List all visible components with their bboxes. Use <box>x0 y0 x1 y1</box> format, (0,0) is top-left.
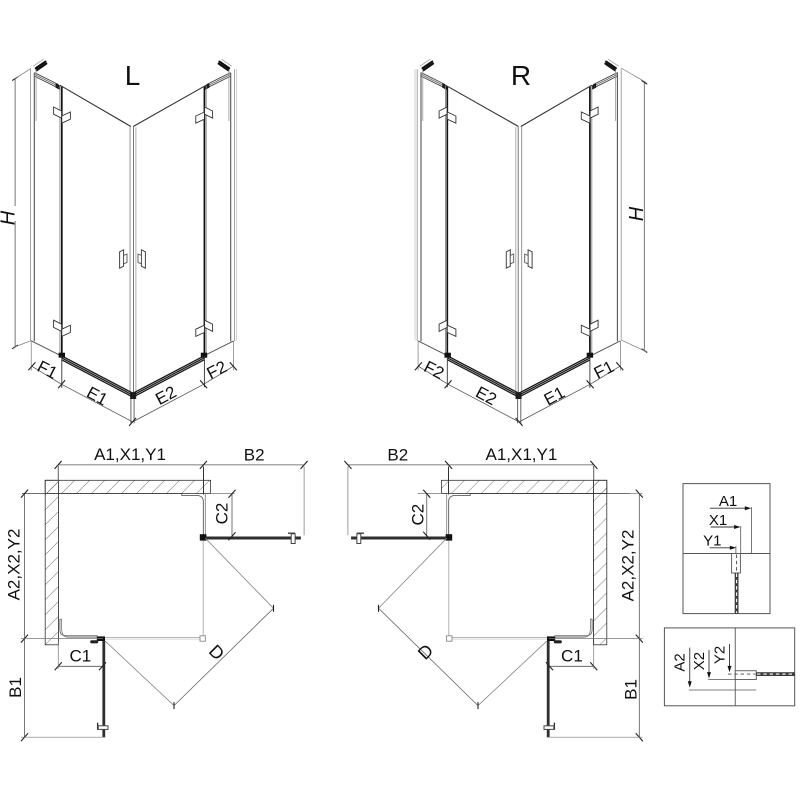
svg-text:A1: A1 <box>719 493 737 510</box>
svg-text:Y1: Y1 <box>703 533 721 550</box>
svg-text:X2: X2 <box>691 652 708 670</box>
svg-text:H: H <box>0 210 20 225</box>
svg-text:A2,X2,Y2: A2,X2,Y2 <box>5 529 24 601</box>
svg-text:L: L <box>125 60 141 91</box>
svg-text:B1: B1 <box>621 679 640 700</box>
svg-text:C1: C1 <box>69 647 91 666</box>
svg-text:A1,X1,Y1: A1,X1,Y1 <box>485 445 557 464</box>
svg-text:X1: X1 <box>709 512 727 529</box>
svg-text:R: R <box>511 60 531 91</box>
svg-text:A1,X1,Y1: A1,X1,Y1 <box>94 445 166 464</box>
svg-text:C2: C2 <box>409 504 428 526</box>
svg-text:B2: B2 <box>387 446 408 465</box>
svg-text:B2: B2 <box>244 446 265 465</box>
svg-text:H: H <box>626 206 648 221</box>
svg-text:B1: B1 <box>6 677 25 698</box>
svg-text:C2: C2 <box>213 503 232 525</box>
svg-text:C1: C1 <box>561 647 583 666</box>
svg-text:A2: A2 <box>671 653 688 671</box>
svg-text:A2,X2,Y2: A2,X2,Y2 <box>618 530 637 602</box>
svg-text:Y2: Y2 <box>711 646 728 664</box>
